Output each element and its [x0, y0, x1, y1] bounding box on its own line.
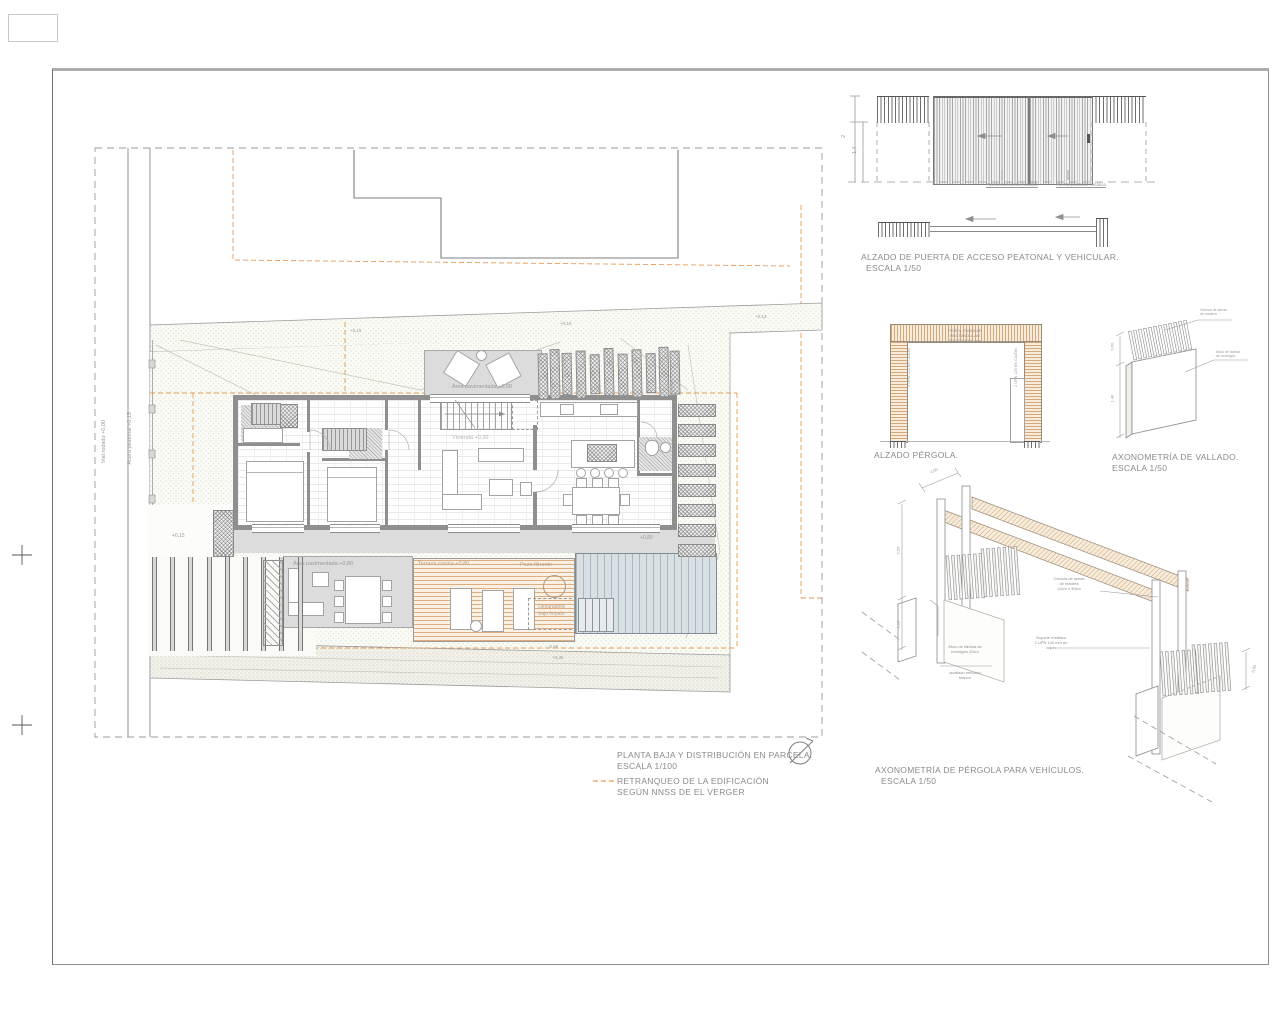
level-label: +0,15 — [172, 533, 185, 540]
pozo-label: Pozo filtrante — [520, 562, 552, 569]
main-title: PLANTA BAJA Y DISTRIBUCIÓN EN PARCELA. — [617, 750, 812, 761]
gate-dim-leaf: 1,4 — [852, 147, 859, 154]
vallado-dim-upper: 0,60 — [1109, 343, 1114, 351]
slat-comb — [946, 554, 985, 600]
pergola-axon-title: AXONOMETRÍA DE PÉRGOLA PARA VEHÍCULOS. — [875, 765, 1084, 776]
axon-dim-h1: 2,50 — [895, 547, 900, 555]
vallado-title: AXONOMETRÍA DE VALLADO. — [1112, 452, 1239, 463]
vivienda-label: Vivienda +0,30 — [452, 435, 488, 442]
vallado-top-2: de madera — [1200, 312, 1217, 316]
vallado-label-right: Muro de fábrica de hormigón — [1216, 350, 1240, 358]
main-scale: ESCALA 1/100 — [617, 761, 677, 772]
profile-note-3: 80x120x4000 mm — [949, 338, 981, 343]
gate-sliding-label: Puerta corredera metálica — [986, 182, 1038, 188]
celosia-3: 12cm x 30cm — [1057, 586, 1081, 591]
vallado-scale: ESCALA 1/50 — [1112, 463, 1167, 474]
plan-linework-over — [0, 0, 1280, 1024]
gate-scale: ESCALA 1/50 — [866, 263, 921, 274]
pergola-column-note-right: 2 UPN 120 EN CAJÓN — [1014, 348, 1019, 387]
street-label-vial: Vial rodado +0,00 — [101, 420, 108, 463]
gate-title: ALZADO DE PUERTA DE ACCESO PEATONAL Y VE… — [861, 252, 1119, 263]
pergola-column-note-left: 2 UPN 120 EN CAJÓN — [907, 348, 912, 387]
slat-comb — [981, 547, 1020, 597]
area-pav-lower-label: Área pavimentada +0,80 — [293, 561, 353, 568]
street-label-acera: Acera peatonal +0,15 — [127, 412, 134, 464]
gate-dim-total: 2 — [841, 135, 848, 138]
muro-label: Muro de fábrica de hormigón 20cm — [936, 644, 994, 654]
depuradora-label: Depuradora bajo forjado — [528, 604, 575, 617]
depuradora-line2: bajo forjado — [538, 611, 564, 617]
level-label: +0,15 — [350, 328, 361, 334]
vallado-right-2: de hormigón — [1216, 354, 1235, 358]
gate-pedestrian-label: Puerta peatonal metálica — [1056, 182, 1106, 188]
soporte-3: cajón — [1046, 645, 1056, 650]
pool-level-label: +0,80 — [640, 535, 653, 542]
pergola-elev-title: ALZADO PÉRGOLA. — [874, 450, 958, 461]
vallado-dim-lower: 1,40 — [1109, 395, 1114, 403]
acabado-label: acabado enlucido blanco — [938, 670, 992, 680]
celosia-label: Celosía de lamas de madera 12cm x 30cm — [1038, 576, 1100, 591]
pergola-profile-note: PERFIL TUBULAR RECTANGULAR 80x120x4000 m… — [920, 328, 1010, 344]
depuradora-line1: Depuradora — [538, 604, 564, 610]
drawing-sheet: Vial rodado +0,00 Acera peatonal +0,15 +… — [0, 0, 1280, 1024]
pergola-axon-scale: ESCALA 1/50 — [881, 776, 936, 787]
soporte-label: Soporte metálico 2 UPN 140 mm en cajón — [1016, 635, 1086, 650]
bottom-level-label: -0,60 — [548, 644, 558, 650]
level-label: +0,19 — [560, 321, 571, 327]
vallado-label-top: Celosía de lamas de madera — [1200, 308, 1227, 316]
area-pav-top-label: Área pavimentada +0,00 — [424, 384, 540, 391]
muro-4: blanco — [959, 675, 971, 680]
level-label: +0,13 — [755, 314, 766, 320]
retranqueo-legend-1: RETRANQUEO DE LA EDIFICACIÓN — [617, 776, 769, 787]
axon-dim-h2: 1,10 — [895, 621, 900, 629]
terraza-label: Terraza cocina +0,80 — [418, 561, 469, 568]
bottom-level-label: +0,45 — [552, 655, 563, 661]
muro-2: hormigón 20cm — [951, 649, 979, 654]
retranqueo-legend-2: SEGÚN NNSS DE EL VERGER — [617, 787, 745, 798]
